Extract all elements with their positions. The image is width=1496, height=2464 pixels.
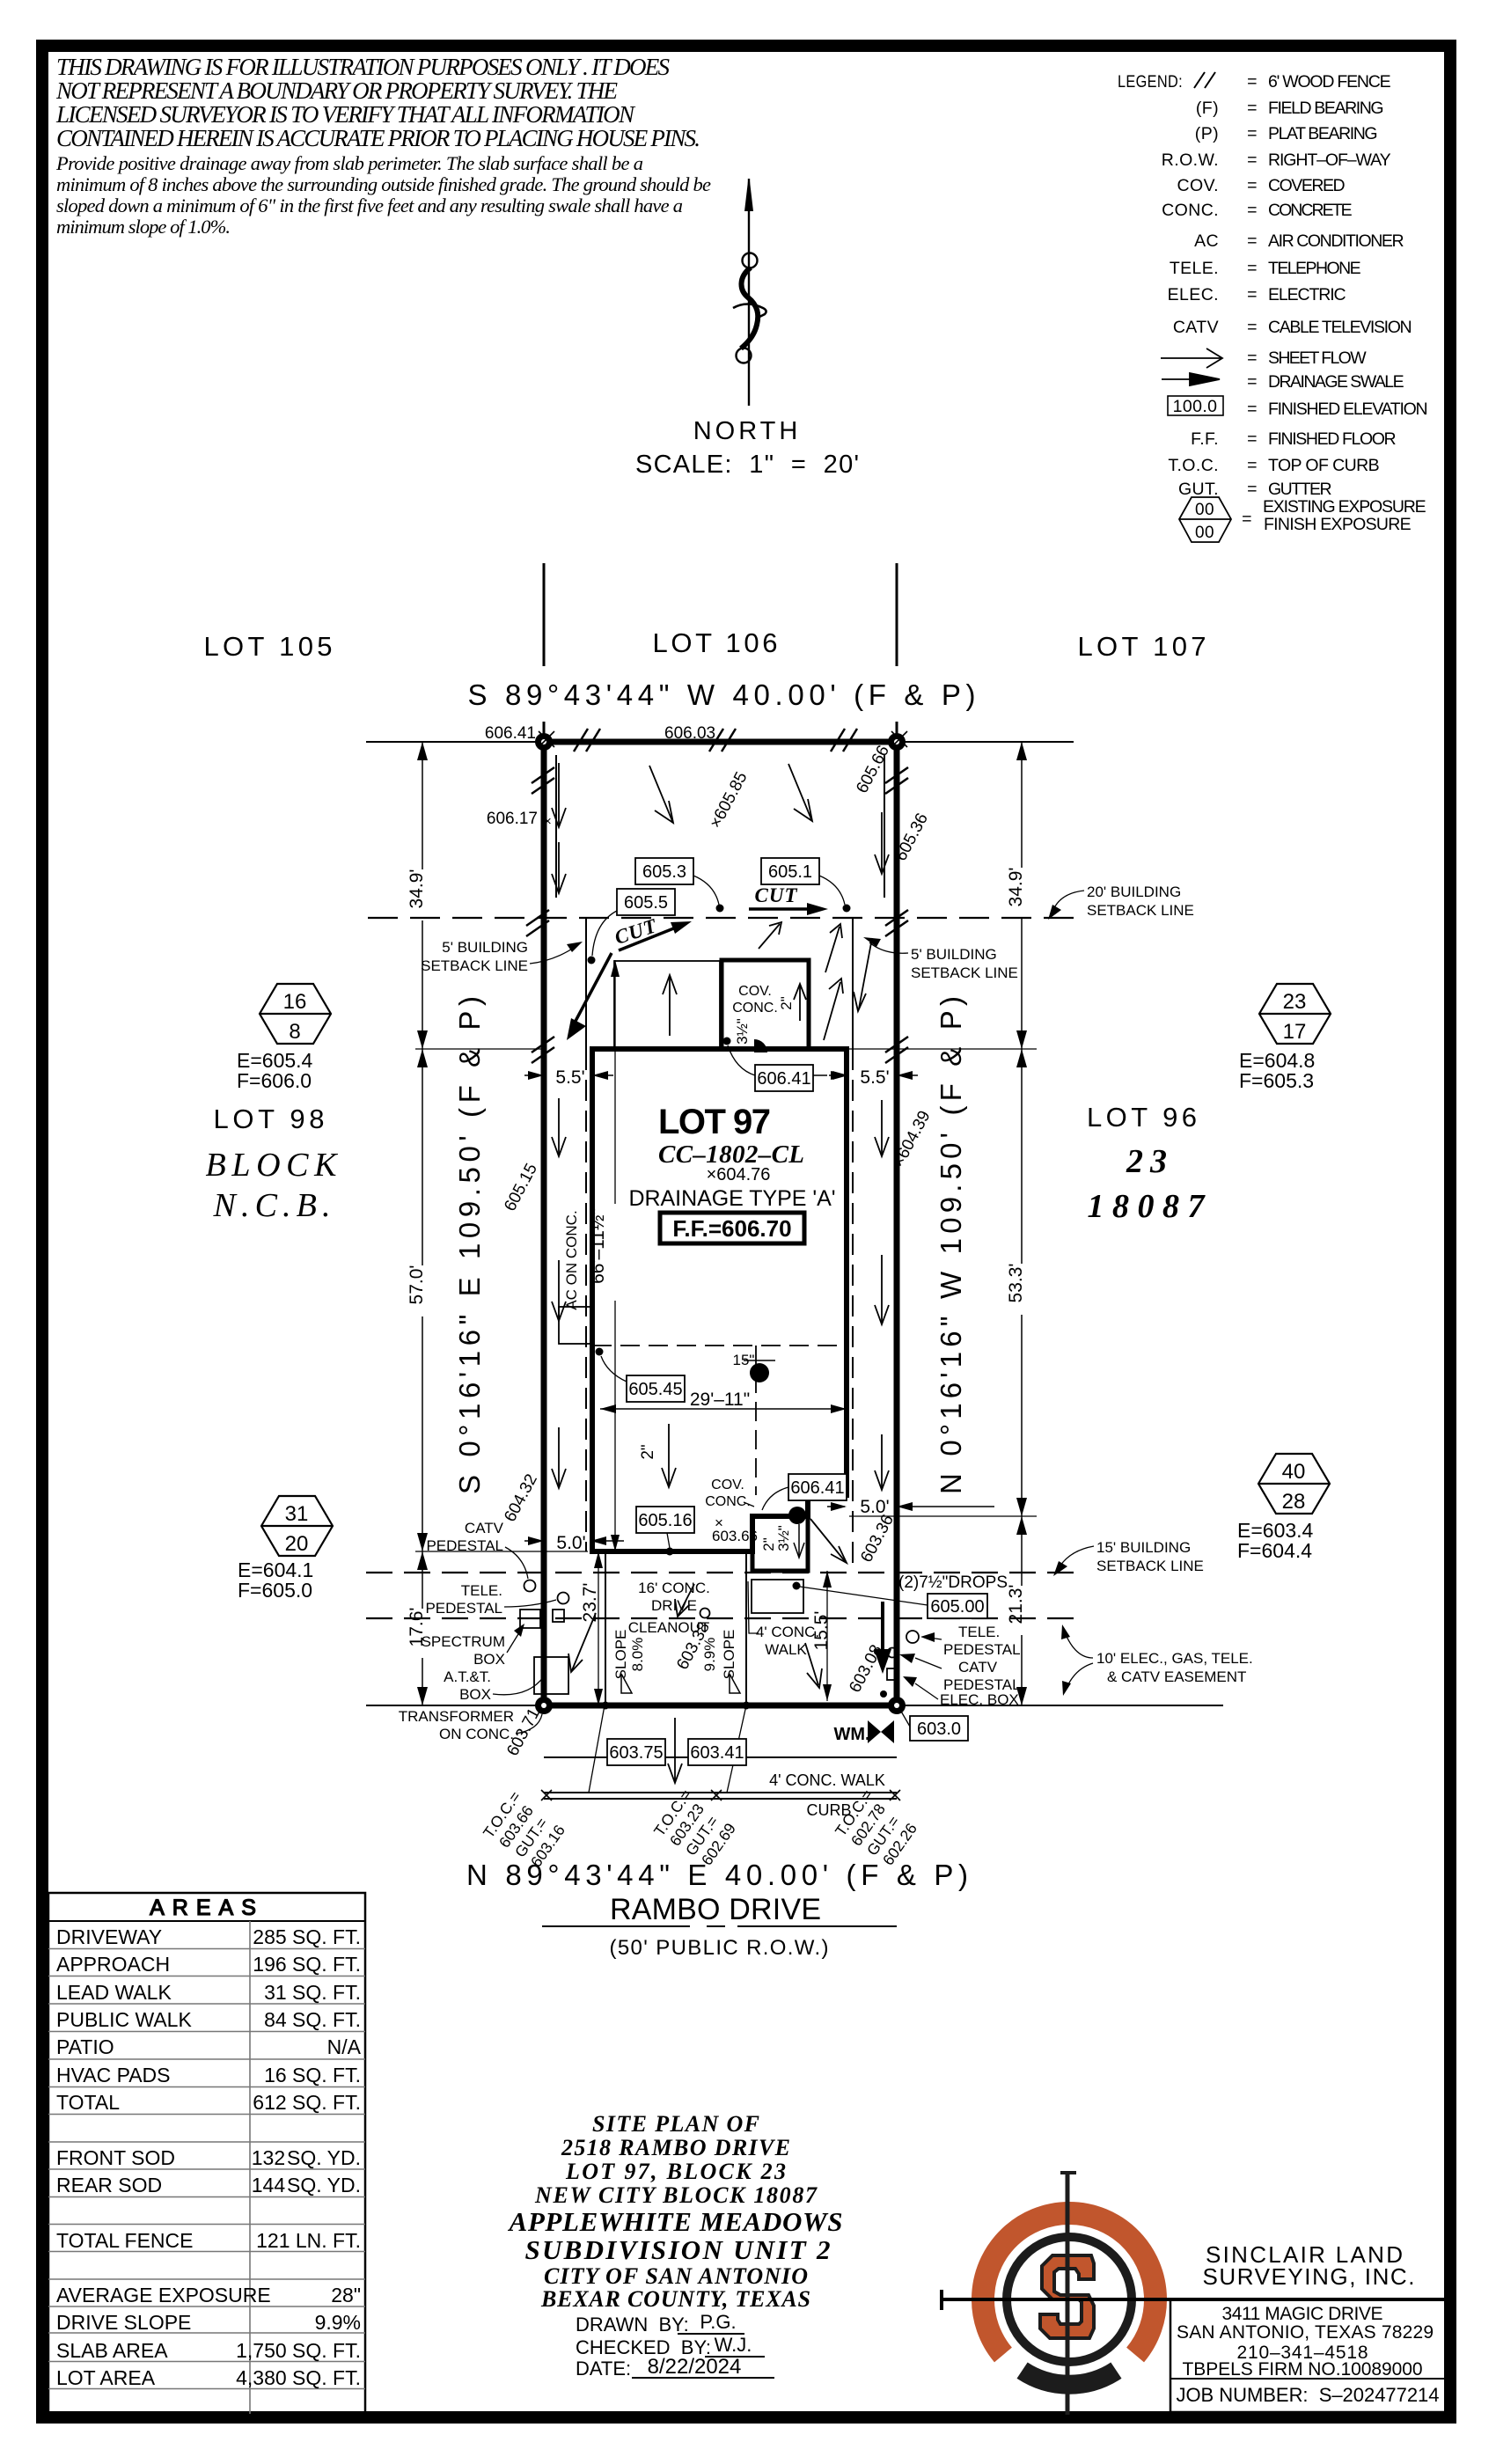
svg-text:AVERAGE EXPOSURE: AVERAGE EXPOSURE xyxy=(56,2284,271,2306)
svg-text:N.C.B.: N.C.B. xyxy=(213,1187,331,1224)
svg-text:FINISHED FLOOR: FINISHED FLOOR xyxy=(1268,429,1397,449)
svg-text:EXISTING EXPOSURE: EXISTING EXPOSURE xyxy=(1263,497,1426,517)
svg-text:34.9': 34.9' xyxy=(407,869,427,909)
svg-text:HVAC PADS: HVAC PADS xyxy=(56,2064,171,2086)
svg-text:=: = xyxy=(1247,99,1258,118)
svg-text:=: = xyxy=(1247,150,1258,170)
svg-text:=: = xyxy=(1247,372,1258,392)
svg-text:CITY OF SAN ANTONIO: CITY OF SAN ANTONIO xyxy=(544,2263,808,2289)
svg-text:SETBACK LINE: SETBACK LINE xyxy=(1096,1558,1204,1574)
svg-text:3½": 3½" xyxy=(775,1525,792,1551)
svg-text:SCALE: 1" = 20': SCALE: 1" = 20' xyxy=(635,451,861,479)
svg-text:=: = xyxy=(1247,456,1258,475)
svg-text:N/A: N/A xyxy=(327,2035,362,2058)
svg-text:PATIO: PATIO xyxy=(56,2035,114,2058)
svg-text:CATV: CATV xyxy=(958,1659,998,1676)
svg-text:AREAS: AREAS xyxy=(150,1896,264,1920)
svg-text:121 LN. FT.: 121 LN. FT. xyxy=(256,2229,361,2252)
svg-text:17: 17 xyxy=(1283,1020,1307,1044)
svg-text:R.O.W.: R.O.W. xyxy=(1162,150,1219,170)
svg-text:144 SQ. YD.: 144 SQ. YD. xyxy=(252,2174,361,2196)
svg-text:=: = xyxy=(1247,176,1258,195)
svg-text:RAMBO DRIVE: RAMBO DRIVE xyxy=(610,1893,826,1926)
svg-text:GUT.: GUT. xyxy=(1178,480,1219,499)
svg-text:BEXAR COUNTY, TEXAS: BEXAR COUNTY, TEXAS xyxy=(540,2286,810,2312)
svg-text:BOX: BOX xyxy=(473,1651,505,1668)
svg-text:TOP OF CURB: TOP OF CURB xyxy=(1268,456,1380,475)
svg-text:606.41: 606.41 xyxy=(485,724,536,743)
svg-text:606.41: 606.41 xyxy=(790,1478,844,1498)
svg-text:5.5': 5.5' xyxy=(860,1067,889,1088)
svg-text:CONC.: CONC. xyxy=(732,1001,778,1016)
svg-text:F=606.0: F=606.0 xyxy=(237,1069,312,1092)
svg-text:8/22/2024: 8/22/2024 xyxy=(648,2355,742,2379)
svg-text:LICENSED SURVEYOR IS TO VERIFY: LICENSED SURVEYOR IS TO VERIFY THAT ALL … xyxy=(55,101,636,128)
svg-text:28: 28 xyxy=(1282,1490,1306,1514)
svg-text:605.5: 605.5 xyxy=(624,893,668,913)
svg-text:1,750 SQ. FT.: 1,750 SQ. FT. xyxy=(236,2339,361,2362)
svg-text:TRANSFORMER: TRANSFORMER xyxy=(399,1708,514,1725)
svg-text:TOTAL: TOTAL xyxy=(56,2091,120,2114)
svg-text:WALK: WALK xyxy=(765,1641,807,1658)
svg-text:00: 00 xyxy=(1195,524,1214,542)
svg-text:NEW CITY BLOCK 18087: NEW CITY BLOCK 18087 xyxy=(534,2182,818,2208)
svg-text:2518 RAMBO DRIVE: 2518 RAMBO DRIVE xyxy=(561,2135,790,2160)
svg-text:F=605.0: F=605.0 xyxy=(238,1579,312,1602)
svg-text:CATV: CATV xyxy=(465,1520,504,1536)
svg-text:SPECTRUM: SPECTRUM xyxy=(422,1633,505,1650)
svg-text:LOT 97, BLOCK 23: LOT 97, BLOCK 23 xyxy=(565,2159,786,2184)
svg-text:RIGHT–OF–WAY: RIGHT–OF–WAY xyxy=(1268,150,1391,170)
svg-text:606.41: 606.41 xyxy=(757,1069,810,1089)
svg-text:TELE.: TELE. xyxy=(461,1582,502,1599)
svg-text:PEDESTAL: PEDESTAL xyxy=(426,1537,503,1554)
svg-text:5.5': 5.5' xyxy=(555,1067,584,1088)
svg-text:COVERED: COVERED xyxy=(1268,176,1346,195)
svg-text:LOT 106: LOT 106 xyxy=(653,627,782,658)
svg-text:SLAB AREA: SLAB AREA xyxy=(56,2339,168,2362)
svg-text:28": 28" xyxy=(331,2284,361,2306)
svg-text:AC: AC xyxy=(1194,231,1219,251)
svg-text:9.9%: 9.9% xyxy=(701,1638,718,1672)
svg-text:84 SQ. FT.: 84 SQ. FT. xyxy=(264,2008,361,2031)
svg-text:COV.: COV. xyxy=(738,984,772,999)
svg-text:Provide positive drainage away: Provide positive drainage away from slab… xyxy=(55,152,643,174)
svg-text:SLOPE: SLOPE xyxy=(721,1630,737,1680)
svg-text:31: 31 xyxy=(285,1502,309,1526)
svg-text:SLOPE: SLOPE xyxy=(612,1630,629,1680)
svg-text:66'–11½": 66'–11½" xyxy=(588,1208,608,1284)
svg-text:CUT: CUT xyxy=(755,884,798,906)
svg-text:CONC.: CONC. xyxy=(1162,201,1219,220)
svg-text:29'–11": 29'–11" xyxy=(690,1390,750,1410)
svg-text:(2)7½"DROPS: (2)7½"DROPS xyxy=(898,1573,1008,1592)
svg-text:605.1: 605.1 xyxy=(768,862,812,882)
svg-text:23.7': 23.7' xyxy=(580,1583,600,1623)
svg-text:603.0: 603.0 xyxy=(917,1720,961,1739)
svg-text:57.0': 57.0' xyxy=(407,1265,427,1305)
svg-text:612 SQ. FT.: 612 SQ. FT. xyxy=(253,2091,361,2114)
svg-text:DRAINAGE TYPE 'A': DRAINAGE TYPE 'A' xyxy=(629,1186,836,1211)
svg-text:10' ELEC., GAS, TELE.: 10' ELEC., GAS, TELE. xyxy=(1096,1650,1253,1667)
svg-text:2": 2" xyxy=(778,996,795,1010)
svg-text:8.0%: 8.0% xyxy=(629,1638,646,1672)
svg-text:minimum of 8 inches above the: minimum of 8 inches above the surroundin… xyxy=(56,173,711,195)
svg-text:LEAD WALK: LEAD WALK xyxy=(56,1981,172,2004)
svg-text:21.3': 21.3' xyxy=(1006,1585,1026,1624)
svg-text:=: = xyxy=(1242,510,1252,529)
svg-text:P.G.: P.G. xyxy=(700,2311,736,2333)
svg-text:23: 23 xyxy=(1283,990,1307,1014)
svg-text:DRAINAGE SWALE: DRAINAGE SWALE xyxy=(1268,372,1404,392)
svg-text:TOTAL FENCE: TOTAL FENCE xyxy=(56,2229,194,2252)
svg-text:PUBLIC WALK: PUBLIC WALK xyxy=(56,2008,192,2031)
svg-text:PLAT BEARING: PLAT BEARING xyxy=(1268,124,1378,143)
svg-text:2": 2" xyxy=(639,1444,657,1459)
svg-text:=: = xyxy=(1247,201,1258,220)
svg-text:603.41: 603.41 xyxy=(690,1743,744,1763)
svg-text:(F): (F) xyxy=(1196,99,1219,118)
svg-text:=: = xyxy=(1247,285,1258,304)
svg-text:20: 20 xyxy=(285,1532,309,1556)
svg-text:SHEET FLOW: SHEET FLOW xyxy=(1268,348,1367,368)
svg-text:GUTTER: GUTTER xyxy=(1268,480,1332,499)
svg-text:00: 00 xyxy=(1195,501,1214,519)
svg-text:8: 8 xyxy=(289,1020,300,1044)
svg-text:F=605.3: F=605.3 xyxy=(1239,1069,1314,1092)
svg-text:=: = xyxy=(1247,259,1258,278)
svg-text:FIELD BEARING: FIELD BEARING xyxy=(1268,99,1384,118)
svg-text:W.J.: W.J. xyxy=(715,2334,752,2356)
svg-text:15' BUILDING: 15' BUILDING xyxy=(1096,1539,1191,1556)
svg-text:34.9': 34.9' xyxy=(1006,868,1026,907)
svg-text:LEGEND:: LEGEND: xyxy=(1118,72,1183,92)
svg-text:196 SQ. FT.: 196 SQ. FT. xyxy=(253,1953,361,1976)
svg-text:16: 16 xyxy=(283,990,307,1014)
svg-text:DRIVE SLOPE: DRIVE SLOPE xyxy=(56,2311,191,2334)
svg-text:NOT REPRESENT A BOUNDARY OR PR: NOT REPRESENT A BOUNDARY OR PROPERTY SUR… xyxy=(55,77,619,104)
svg-text:3½": 3½" xyxy=(734,1018,751,1045)
svg-text:606.17: 606.17 xyxy=(487,810,538,828)
svg-text:16' CONC.: 16' CONC. xyxy=(638,1580,710,1596)
svg-text:T.O.C.: T.O.C. xyxy=(1168,456,1219,475)
svg-text:COV.: COV. xyxy=(1177,176,1219,195)
svg-text:5' BUILDING: 5' BUILDING xyxy=(911,946,997,963)
svg-text:& CATV EASEMENT: & CATV EASEMENT xyxy=(1107,1668,1246,1685)
svg-text:TELE.: TELE. xyxy=(1170,259,1219,278)
svg-text:603.66: 603.66 xyxy=(712,1528,758,1544)
svg-text:CABLE TELEVISION: CABLE TELEVISION xyxy=(1268,318,1412,337)
svg-text:=: = xyxy=(1247,231,1258,251)
svg-text:FINISH EXPOSURE: FINISH EXPOSURE xyxy=(1264,515,1412,534)
svg-text:SETBACK LINE: SETBACK LINE xyxy=(421,957,528,974)
svg-text:REAR SOD: REAR SOD xyxy=(56,2174,162,2196)
svg-text:BLOCK: BLOCK xyxy=(206,1147,339,1184)
svg-text:606.03: 606.03 xyxy=(664,724,715,743)
svg-text:=: = xyxy=(1247,429,1258,449)
svg-text:FRONT SOD: FRONT SOD xyxy=(56,2146,175,2169)
svg-text:THIS DRAWING IS FOR ILLUSTRATI: THIS DRAWING IS FOR ILLUSTRATION PURPOSE… xyxy=(56,54,670,80)
svg-text:(50' PUBLIC R.O.W.): (50' PUBLIC R.O.W.) xyxy=(610,1936,829,1960)
svg-text:LOT 96: LOT 96 xyxy=(1087,1102,1201,1133)
svg-text:9.9%: 9.9% xyxy=(315,2311,361,2334)
svg-text:285 SQ. FT.: 285 SQ. FT. xyxy=(253,1925,361,1948)
svg-text:TELEPHONE: TELEPHONE xyxy=(1268,259,1361,278)
svg-text:SITE PLAN OF: SITE PLAN OF xyxy=(592,2111,759,2137)
svg-text:DRIVEWAY: DRIVEWAY xyxy=(56,1925,162,1948)
svg-text:sloped down a minimum of 6" in: sloped down a minimum of 6" in the first… xyxy=(56,194,683,216)
svg-text:4' CONC. WALK: 4' CONC. WALK xyxy=(769,1771,885,1789)
svg-text:SETBACK LINE: SETBACK LINE xyxy=(911,964,1018,981)
svg-text:PEDESTAL: PEDESTAL xyxy=(943,1641,1021,1658)
svg-text:ON CONC.: ON CONC. xyxy=(439,1726,514,1742)
svg-text:CLEANOUT: CLEANOUT xyxy=(628,1619,710,1636)
svg-text:6' WOOD FENCE: 6' WOOD FENCE xyxy=(1268,72,1391,92)
svg-text:SETBACK LINE: SETBACK LINE xyxy=(1087,902,1194,919)
svg-text:SUBDIVISION UNIT 2: SUBDIVISION UNIT 2 xyxy=(525,2234,831,2265)
svg-text:100.0: 100.0 xyxy=(1173,397,1218,416)
svg-text:F.F.=606.70: F.F.=606.70 xyxy=(672,1215,791,1242)
svg-text:PEDESTAL: PEDESTAL xyxy=(425,1600,502,1617)
svg-text:=: = xyxy=(1247,480,1258,499)
svg-text:SURVEYING, INC.: SURVEYING, INC. xyxy=(1203,2263,1415,2290)
svg-text:605.45: 605.45 xyxy=(628,1380,682,1399)
svg-text:LOT 107: LOT 107 xyxy=(1078,631,1211,662)
svg-text:5' BUILDING: 5' BUILDING xyxy=(442,939,528,956)
svg-text:SAN ANTONIO, TEXAS 78229: SAN ANTONIO, TEXAS 78229 xyxy=(1177,2322,1434,2343)
svg-text:DATE:: DATE: xyxy=(576,2358,631,2380)
svg-text:3411 MAGIC DRIVE: 3411 MAGIC DRIVE xyxy=(1222,2304,1383,2324)
svg-text:40: 40 xyxy=(1282,1460,1306,1484)
svg-text:LOT AREA: LOT AREA xyxy=(56,2366,156,2389)
svg-text:FINISHED ELEVATION: FINISHED ELEVATION xyxy=(1268,400,1428,419)
svg-text:ELEC. BOX: ELEC. BOX xyxy=(940,1691,1019,1708)
svg-text:F=604.4: F=604.4 xyxy=(1237,1539,1312,1562)
svg-text:(P): (P) xyxy=(1195,124,1219,143)
svg-text:CONCRETE: CONCRETE xyxy=(1268,201,1353,220)
svg-text:53.3': 53.3' xyxy=(1006,1264,1026,1303)
svg-text:5.0': 5.0' xyxy=(556,1533,585,1553)
svg-text:31 SQ. FT.: 31 SQ. FT. xyxy=(264,1981,361,2004)
svg-text:BOX: BOX xyxy=(459,1686,491,1703)
svg-text:DRIVE: DRIVE xyxy=(651,1597,697,1614)
svg-text:TELE.: TELE. xyxy=(958,1624,1000,1640)
svg-text:COV.: COV. xyxy=(711,1478,744,1492)
svg-text:16 SQ. FT.: 16 SQ. FT. xyxy=(264,2064,361,2086)
svg-text:NORTH: NORTH xyxy=(693,417,802,445)
svg-text:JOB NUMBER: S–202477214: JOB NUMBER: S–202477214 xyxy=(1177,2384,1440,2406)
svg-text:20' BUILDING: 20' BUILDING xyxy=(1087,884,1181,900)
svg-text:605.16: 605.16 xyxy=(638,1511,692,1530)
svg-text:TBPELS FIRM NO.10089000: TBPELS FIRM NO.10089000 xyxy=(1183,2359,1423,2380)
svg-text:LOT 97: LOT 97 xyxy=(658,1103,776,1141)
svg-text:LOT 98: LOT 98 xyxy=(214,1104,329,1134)
svg-text:605.00: 605.00 xyxy=(930,1597,984,1617)
svg-text:CATV: CATV xyxy=(1173,318,1219,337)
svg-text:F.F.: F.F. xyxy=(1191,429,1219,449)
svg-text:132 SQ. YD.: 132 SQ. YD. xyxy=(252,2146,361,2169)
svg-text:ELECTRIC: ELECTRIC xyxy=(1268,285,1346,304)
svg-text:×604.76: ×604.76 xyxy=(707,1165,771,1184)
svg-text:=: = xyxy=(1247,72,1258,92)
svg-text:×: × xyxy=(544,814,552,829)
svg-text:minimum slope of 1.0%.: minimum slope of 1.0%. xyxy=(56,216,231,238)
svg-text:603.75: 603.75 xyxy=(609,1743,663,1763)
svg-text:LOT 105: LOT 105 xyxy=(204,631,337,662)
svg-text:=: = xyxy=(1247,318,1258,337)
svg-text:DRAWN BY:: DRAWN BY: xyxy=(576,2314,689,2336)
svg-text:CONC.: CONC. xyxy=(705,1494,751,1509)
svg-text:WM.: WM. xyxy=(833,1725,869,1744)
svg-text:AC ON CONC.: AC ON CONC. xyxy=(563,1210,580,1309)
svg-text:CONTAINED HEREIN IS ACCURATE P: CONTAINED HEREIN IS ACCURATE PRIOR TO PL… xyxy=(56,125,700,151)
svg-text:ELEC.: ELEC. xyxy=(1168,285,1219,304)
svg-text:APPLEWHITE MEADOWS: APPLEWHITE MEADOWS xyxy=(508,2206,843,2237)
svg-text:N 0°16'16" W 109.50' (F & P): N 0°16'16" W 109.50' (F & P) xyxy=(935,996,967,1494)
svg-text:=: = xyxy=(1247,348,1258,368)
svg-text:=: = xyxy=(1247,124,1258,143)
svg-text:4' CONC.: 4' CONC. xyxy=(756,1624,819,1640)
svg-text:605.3: 605.3 xyxy=(642,862,686,882)
svg-text:A.T.&T.: A.T.&T. xyxy=(444,1668,491,1685)
svg-text:AIR CONDITIONER: AIR CONDITIONER xyxy=(1268,231,1404,251)
svg-text:4,380 SQ. FT.: 4,380 SQ. FT. xyxy=(236,2366,361,2389)
svg-text:=: = xyxy=(1247,400,1258,419)
svg-text:APPROACH: APPROACH xyxy=(56,1953,170,1976)
